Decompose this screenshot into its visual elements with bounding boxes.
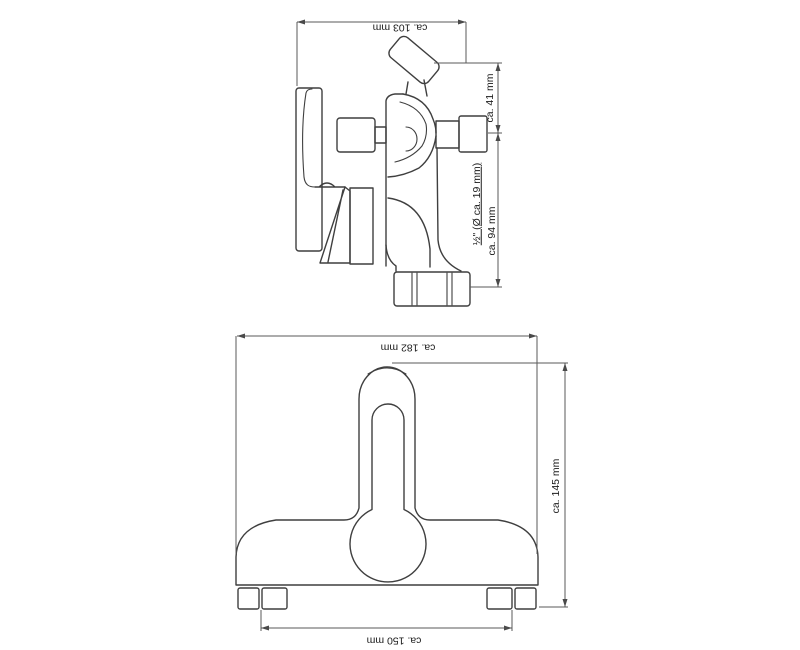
cartridge-dome-inner (395, 102, 427, 162)
neck-cap-seam (368, 368, 406, 374)
left-connection-nut-outer (238, 588, 259, 609)
arrow-103-right (458, 20, 466, 25)
dimension-arrows (237, 20, 568, 631)
wall-plate (296, 88, 322, 251)
right-connection-nut-inner (487, 588, 512, 609)
arrow-150-right (504, 626, 512, 631)
valve-housing-block (350, 188, 373, 264)
right-connection-nut-outer (515, 588, 536, 609)
dim-label-side-height: ca. 94 mm (487, 206, 498, 255)
spout-elbow (386, 148, 461, 271)
dim-front-height-lines (392, 363, 568, 607)
dim-label-front-hole-distance: ca. 150 mm (367, 635, 422, 646)
cartridge-cap (406, 127, 417, 151)
side-view (296, 34, 487, 306)
dim-front-holes-lines (261, 610, 512, 631)
diverter-knob (337, 118, 375, 152)
arrow-182-left (237, 334, 245, 339)
dim-label-side-width: ca. 103 mm (373, 22, 428, 33)
arrow-94-top (496, 133, 501, 141)
arrow-145-top (563, 363, 568, 371)
dimension-lines (236, 22, 568, 631)
dim-label-side-outlet-offset: ca. 41 mm (485, 73, 496, 122)
arrow-182-right (529, 334, 537, 339)
arrow-94-bottom (496, 279, 501, 287)
arrow-150-left (261, 626, 269, 631)
valve-housing (320, 187, 350, 263)
arrow-41-bottom (496, 125, 501, 133)
dim-front-width-lines (236, 336, 537, 554)
left-connection-nut-inner (262, 588, 287, 609)
dim-label-front-width: ca. 182 mm (381, 342, 436, 353)
outlet-fitting-neck (436, 121, 459, 148)
front-view (236, 367, 538, 609)
dim-label-side-thread: ½" (Ø ca. 19 mm) (472, 163, 483, 246)
dim-label-front-height: ca. 145 mm (551, 459, 562, 514)
faucet-body-front (236, 367, 538, 585)
faucet-technical-drawing (0, 0, 800, 650)
arrow-145-bottom (563, 599, 568, 607)
diverter-knob-stem (375, 127, 386, 143)
arrow-41-top (496, 63, 501, 71)
lever-handle-neck (406, 80, 427, 96)
technical-drawing-page: ca. 103 mm ca. 41 mm ½" (Ø ca. 19 mm) ca… (0, 0, 800, 650)
bottom-outlet-nut-facets (412, 273, 452, 305)
wall-plate-edge-line (303, 89, 315, 187)
lever-handle (386, 34, 441, 86)
arrow-103-left (297, 20, 305, 25)
body-shoulder-line (315, 183, 345, 187)
body-outline (386, 94, 403, 266)
bottom-outlet-nut (394, 272, 470, 306)
